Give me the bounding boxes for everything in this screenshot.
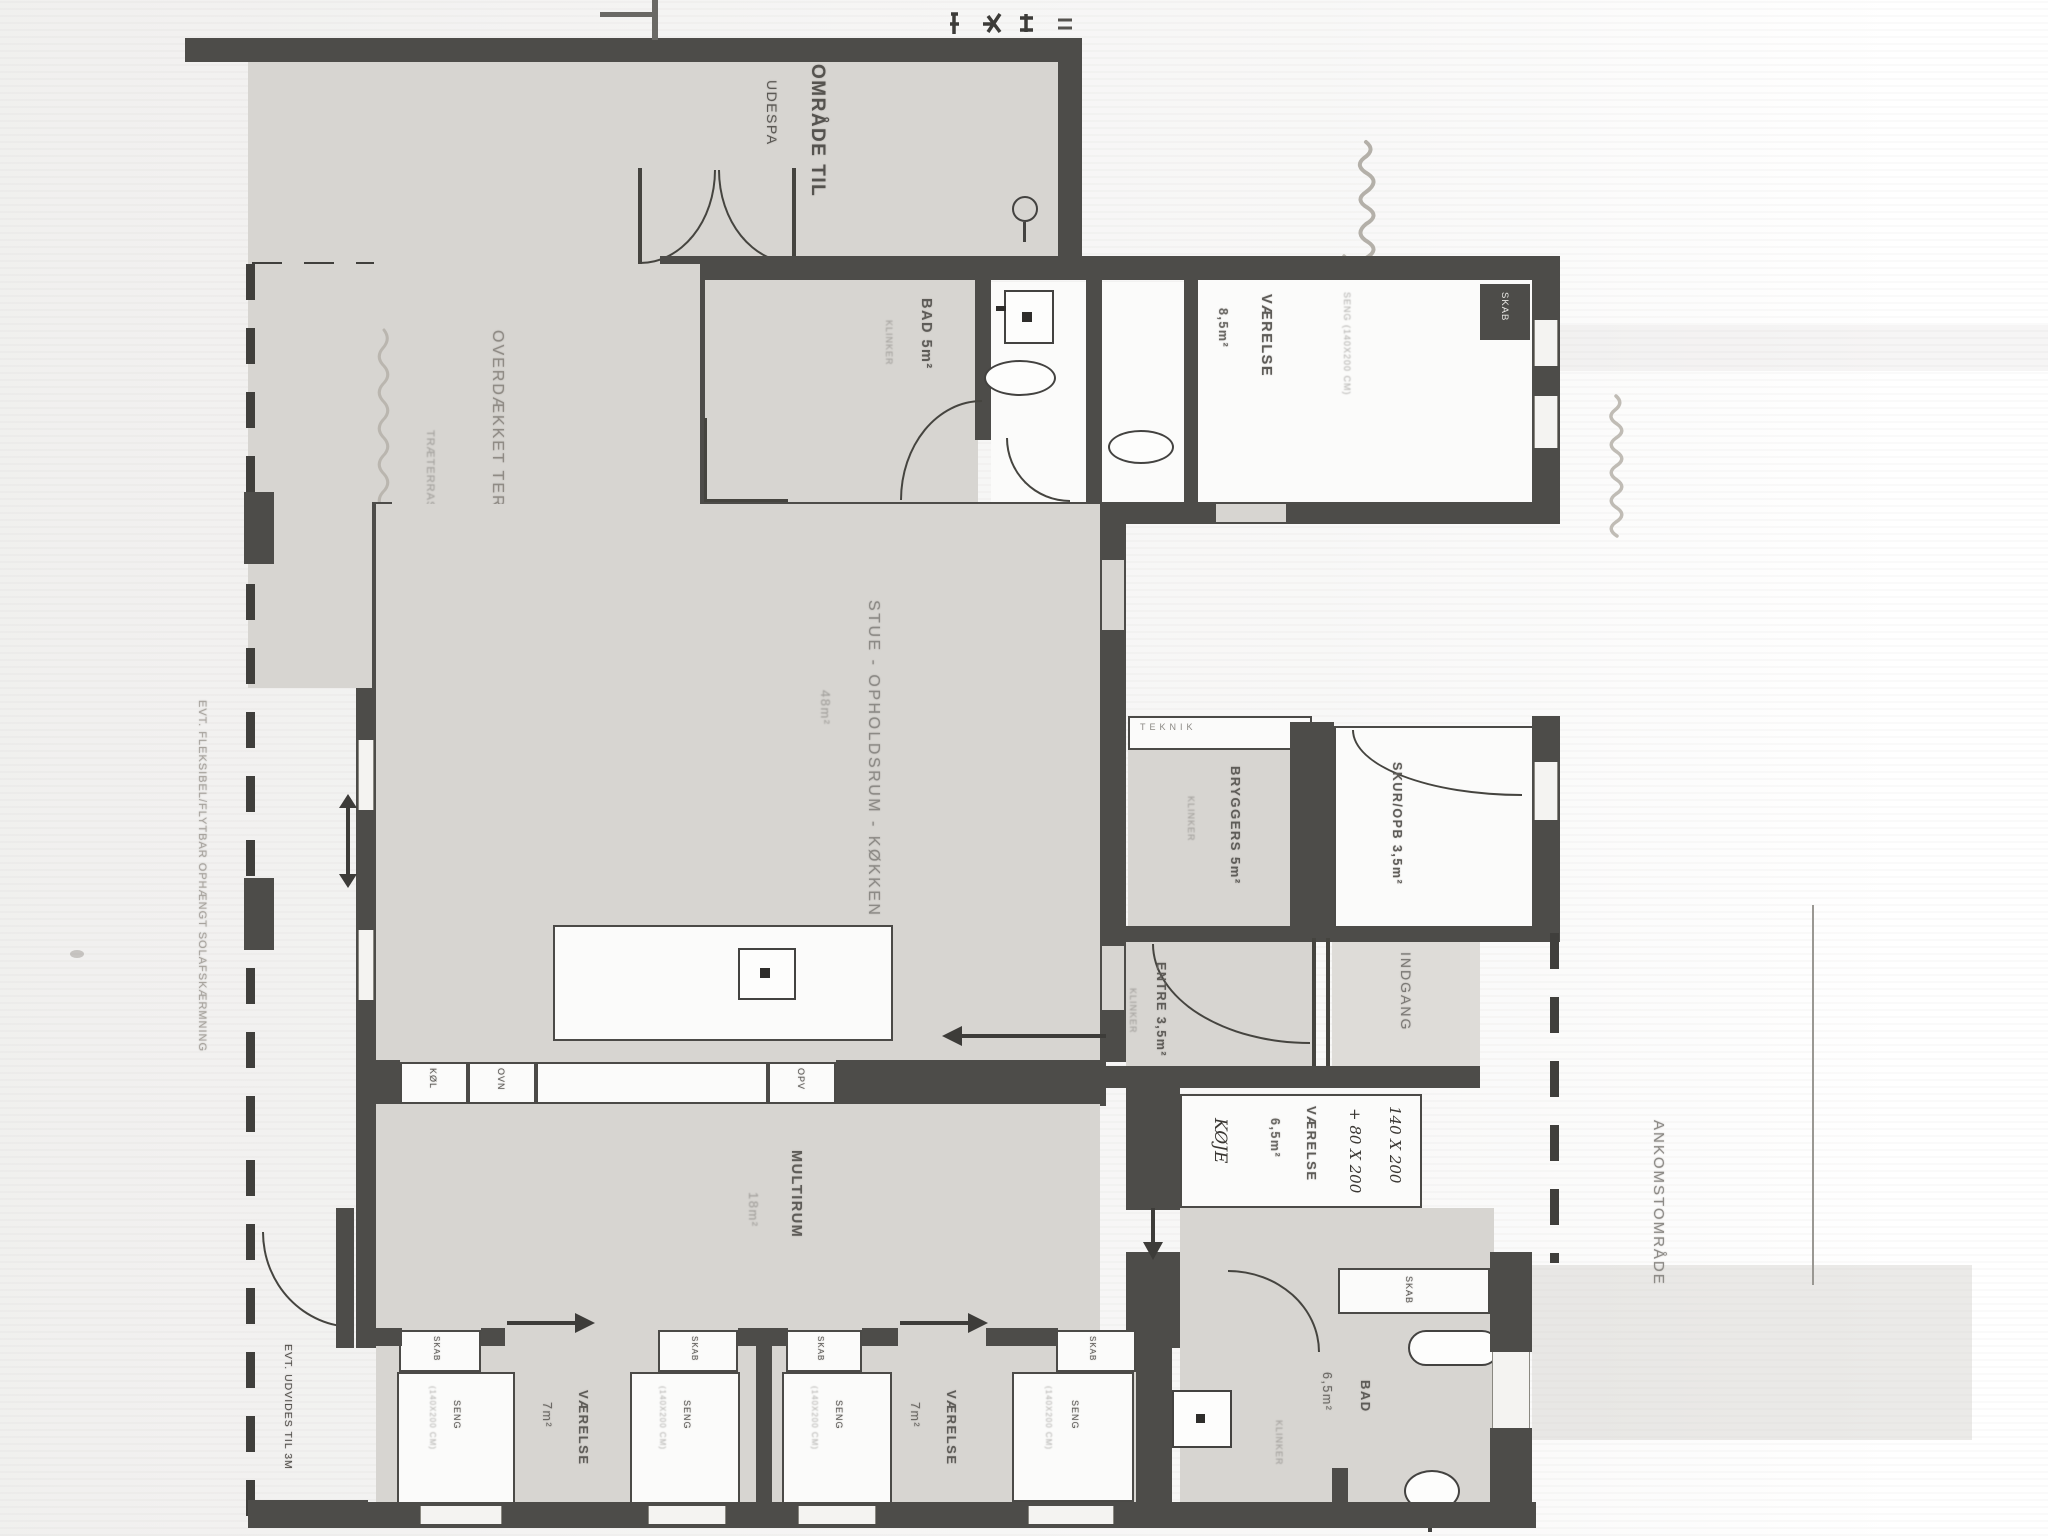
wall-stub	[600, 12, 654, 17]
boundary-dash-right	[1550, 933, 1559, 1263]
vaerelse85-label: VÆRELSE	[1258, 294, 1274, 377]
wall	[738, 1328, 788, 1346]
wall	[1126, 1088, 1180, 1210]
vaerelse65-hand-note-1: 140 X 200	[1386, 1106, 1404, 1183]
cut-off-text-marks	[950, 6, 1090, 40]
sink-dot	[760, 968, 770, 978]
multirum-label: MULTIRUM	[788, 1150, 804, 1238]
toilet-icon	[984, 360, 1056, 396]
post	[244, 878, 274, 950]
illegible-print-note	[1600, 392, 1640, 567]
floor-plan-scan: OMRÅDE TIL UDESPA BAD 5m² KLINKER 8,5m² …	[0, 0, 2048, 1536]
vaerelse65-hand-note-3: KØJE	[1210, 1118, 1230, 1163]
vaerelse65-hand-note-2: + 80 X 200	[1346, 1108, 1364, 1193]
sink-tap	[996, 306, 1006, 311]
window	[420, 1506, 502, 1524]
bed-size-label: (140X200 CM)	[810, 1386, 819, 1450]
wall-stub	[652, 0, 658, 40]
vaerelse85-area: 8,5m²	[1216, 308, 1230, 348]
wall	[1100, 1066, 1480, 1088]
bed-size-label: (140X200 CM)	[428, 1386, 437, 1450]
basin-dot	[1196, 1414, 1205, 1423]
bad-top-label: BAD 5m²	[918, 298, 934, 370]
arrow-left-icon	[940, 1022, 1110, 1050]
vaerelse65-label: VÆRELSE	[1304, 1106, 1319, 1182]
window	[1534, 762, 1558, 820]
sun-screen-note: EVT. FLEKSIBEL/FLYTBAR OPHÆNGT SOLAFSKÆR…	[196, 700, 208, 1052]
hook-icon	[1012, 196, 1038, 222]
door-opening	[1102, 560, 1124, 630]
bad-top-floor-note: KLINKER	[884, 320, 894, 366]
multirum-floor	[376, 1104, 1100, 1348]
window	[798, 1506, 876, 1524]
bad-bottom-area: 6,5m²	[1320, 1372, 1334, 1411]
bedroom7-area: 7m²	[908, 1402, 922, 1428]
stue-label: STUE - OPHOLDSRUM - KØKKEN	[864, 600, 882, 917]
scan-blotch-bottom-right	[1532, 1265, 1972, 1440]
wall	[1086, 278, 1102, 506]
spa-area-sublabel: UDESPA	[764, 80, 780, 146]
wall	[1290, 722, 1334, 936]
bryggers-floor-note: KLINKER	[1186, 796, 1196, 842]
bedroom7-area: 7m²	[540, 1402, 554, 1428]
window	[1028, 1506, 1114, 1524]
expand-note: EVT. UDVIDES TIL 3M	[282, 1344, 294, 1470]
bedroom7-label: VÆRELSE	[944, 1390, 959, 1466]
multirum-area: 18m²	[746, 1192, 761, 1228]
bad-bottom-label: BAD	[1358, 1380, 1373, 1413]
scan-band-right	[1540, 325, 2048, 371]
door-frame	[1326, 938, 1330, 1070]
wall	[862, 1328, 898, 1346]
entre-floor-note: KLINKER	[1128, 988, 1138, 1034]
skab-label: SKAB	[1404, 1276, 1414, 1304]
door-frame	[1312, 938, 1316, 1070]
stue-area: 48m²	[818, 690, 833, 726]
double-arrow-icon	[334, 792, 362, 890]
teknik-label: TEKNIK	[1140, 722, 1197, 732]
scan-speck	[70, 950, 84, 958]
window	[358, 930, 374, 1000]
bed-size-label: (140X200 CM)	[1044, 1386, 1053, 1450]
bed	[397, 1372, 515, 1506]
bed	[630, 1372, 740, 1506]
wall	[986, 1328, 1058, 1346]
bryggers-label: BRYGGERS 5m²	[1228, 766, 1243, 885]
window	[1492, 1352, 1530, 1428]
outer-wall	[1532, 716, 1560, 936]
closet-label: SKAB	[432, 1336, 441, 1361]
outer-wall	[1532, 256, 1560, 510]
bathtub-icon	[1408, 1330, 1500, 1366]
bed	[782, 1372, 892, 1506]
bed	[1012, 1372, 1134, 1502]
wall	[376, 1328, 402, 1346]
skab-box	[1338, 1268, 1490, 1314]
shower-line	[704, 418, 707, 502]
outer-wall	[1490, 1428, 1532, 1512]
outer-wall	[356, 1088, 376, 1348]
outer-wall	[248, 1500, 368, 1528]
entre-label: ENTRE 3,5m²	[1154, 962, 1168, 1057]
wall	[185, 38, 1082, 62]
bed-label: SENG	[682, 1400, 692, 1430]
post	[244, 492, 274, 564]
outer-wall	[356, 1502, 1536, 1528]
wall	[1090, 256, 1560, 280]
toilet-icon	[1108, 430, 1174, 464]
dishwasher-label: OPV	[796, 1068, 806, 1090]
window	[1534, 320, 1558, 366]
bryggers-floor	[1128, 750, 1290, 934]
closet-label: SKAB	[1088, 1336, 1097, 1361]
wc-room-2	[1102, 282, 1184, 502]
wall	[336, 1208, 354, 1348]
bed-size-label: (140X200 CM)	[658, 1386, 667, 1450]
hook-stem	[1023, 222, 1026, 242]
wall	[376, 1060, 400, 1106]
spa-area-label: OMRÅDE TIL	[806, 64, 828, 197]
bed-label: SENG	[452, 1400, 462, 1430]
skur-label: SKUR/OPB 3,5m²	[1390, 762, 1404, 885]
arrow-down-icon	[1138, 1206, 1168, 1262]
counter	[536, 1062, 768, 1104]
vaerelse65-area: 6,5m²	[1268, 1118, 1282, 1158]
kitchen-island	[553, 925, 893, 1041]
oven-label: OVN	[496, 1068, 506, 1091]
closet-label: SKAB	[816, 1336, 825, 1361]
bad-bottom-floor-note: KLINKER	[1274, 1420, 1284, 1466]
arrow-right-icon	[505, 1310, 597, 1336]
wall	[1100, 926, 1560, 942]
window	[1534, 396, 1558, 448]
wall	[660, 256, 1090, 280]
wall	[481, 1328, 505, 1346]
vaerelse85-bed-note: SENG (140X200 CM)	[1342, 292, 1352, 396]
wall	[836, 1060, 1106, 1106]
door-leaf	[792, 168, 796, 266]
wall	[1136, 1348, 1172, 1508]
arrow-right-icon	[898, 1310, 990, 1336]
closet-label: SKAB	[690, 1336, 699, 1361]
indgang-label: INDGANG	[1398, 952, 1414, 1031]
wall	[1058, 38, 1082, 272]
window	[648, 1506, 726, 1524]
door-leaf	[638, 168, 642, 266]
ankomst-label: ANKOMSTOMRÅDE	[1650, 1120, 1667, 1286]
door-opening	[1216, 504, 1286, 522]
sink-dot	[1022, 312, 1032, 322]
skab-label: SKAB	[1499, 292, 1510, 321]
fridge-label: KØL	[428, 1068, 438, 1089]
site-line	[1812, 905, 1814, 1285]
outer-wall	[1490, 1252, 1532, 1352]
wall	[756, 1345, 772, 1505]
bed-label: SENG	[834, 1400, 844, 1430]
wall	[1184, 278, 1198, 506]
door-opening	[1102, 946, 1124, 1010]
bedroom7-label: VÆRELSE	[576, 1390, 591, 1466]
bed-label: SENG	[1070, 1400, 1080, 1430]
